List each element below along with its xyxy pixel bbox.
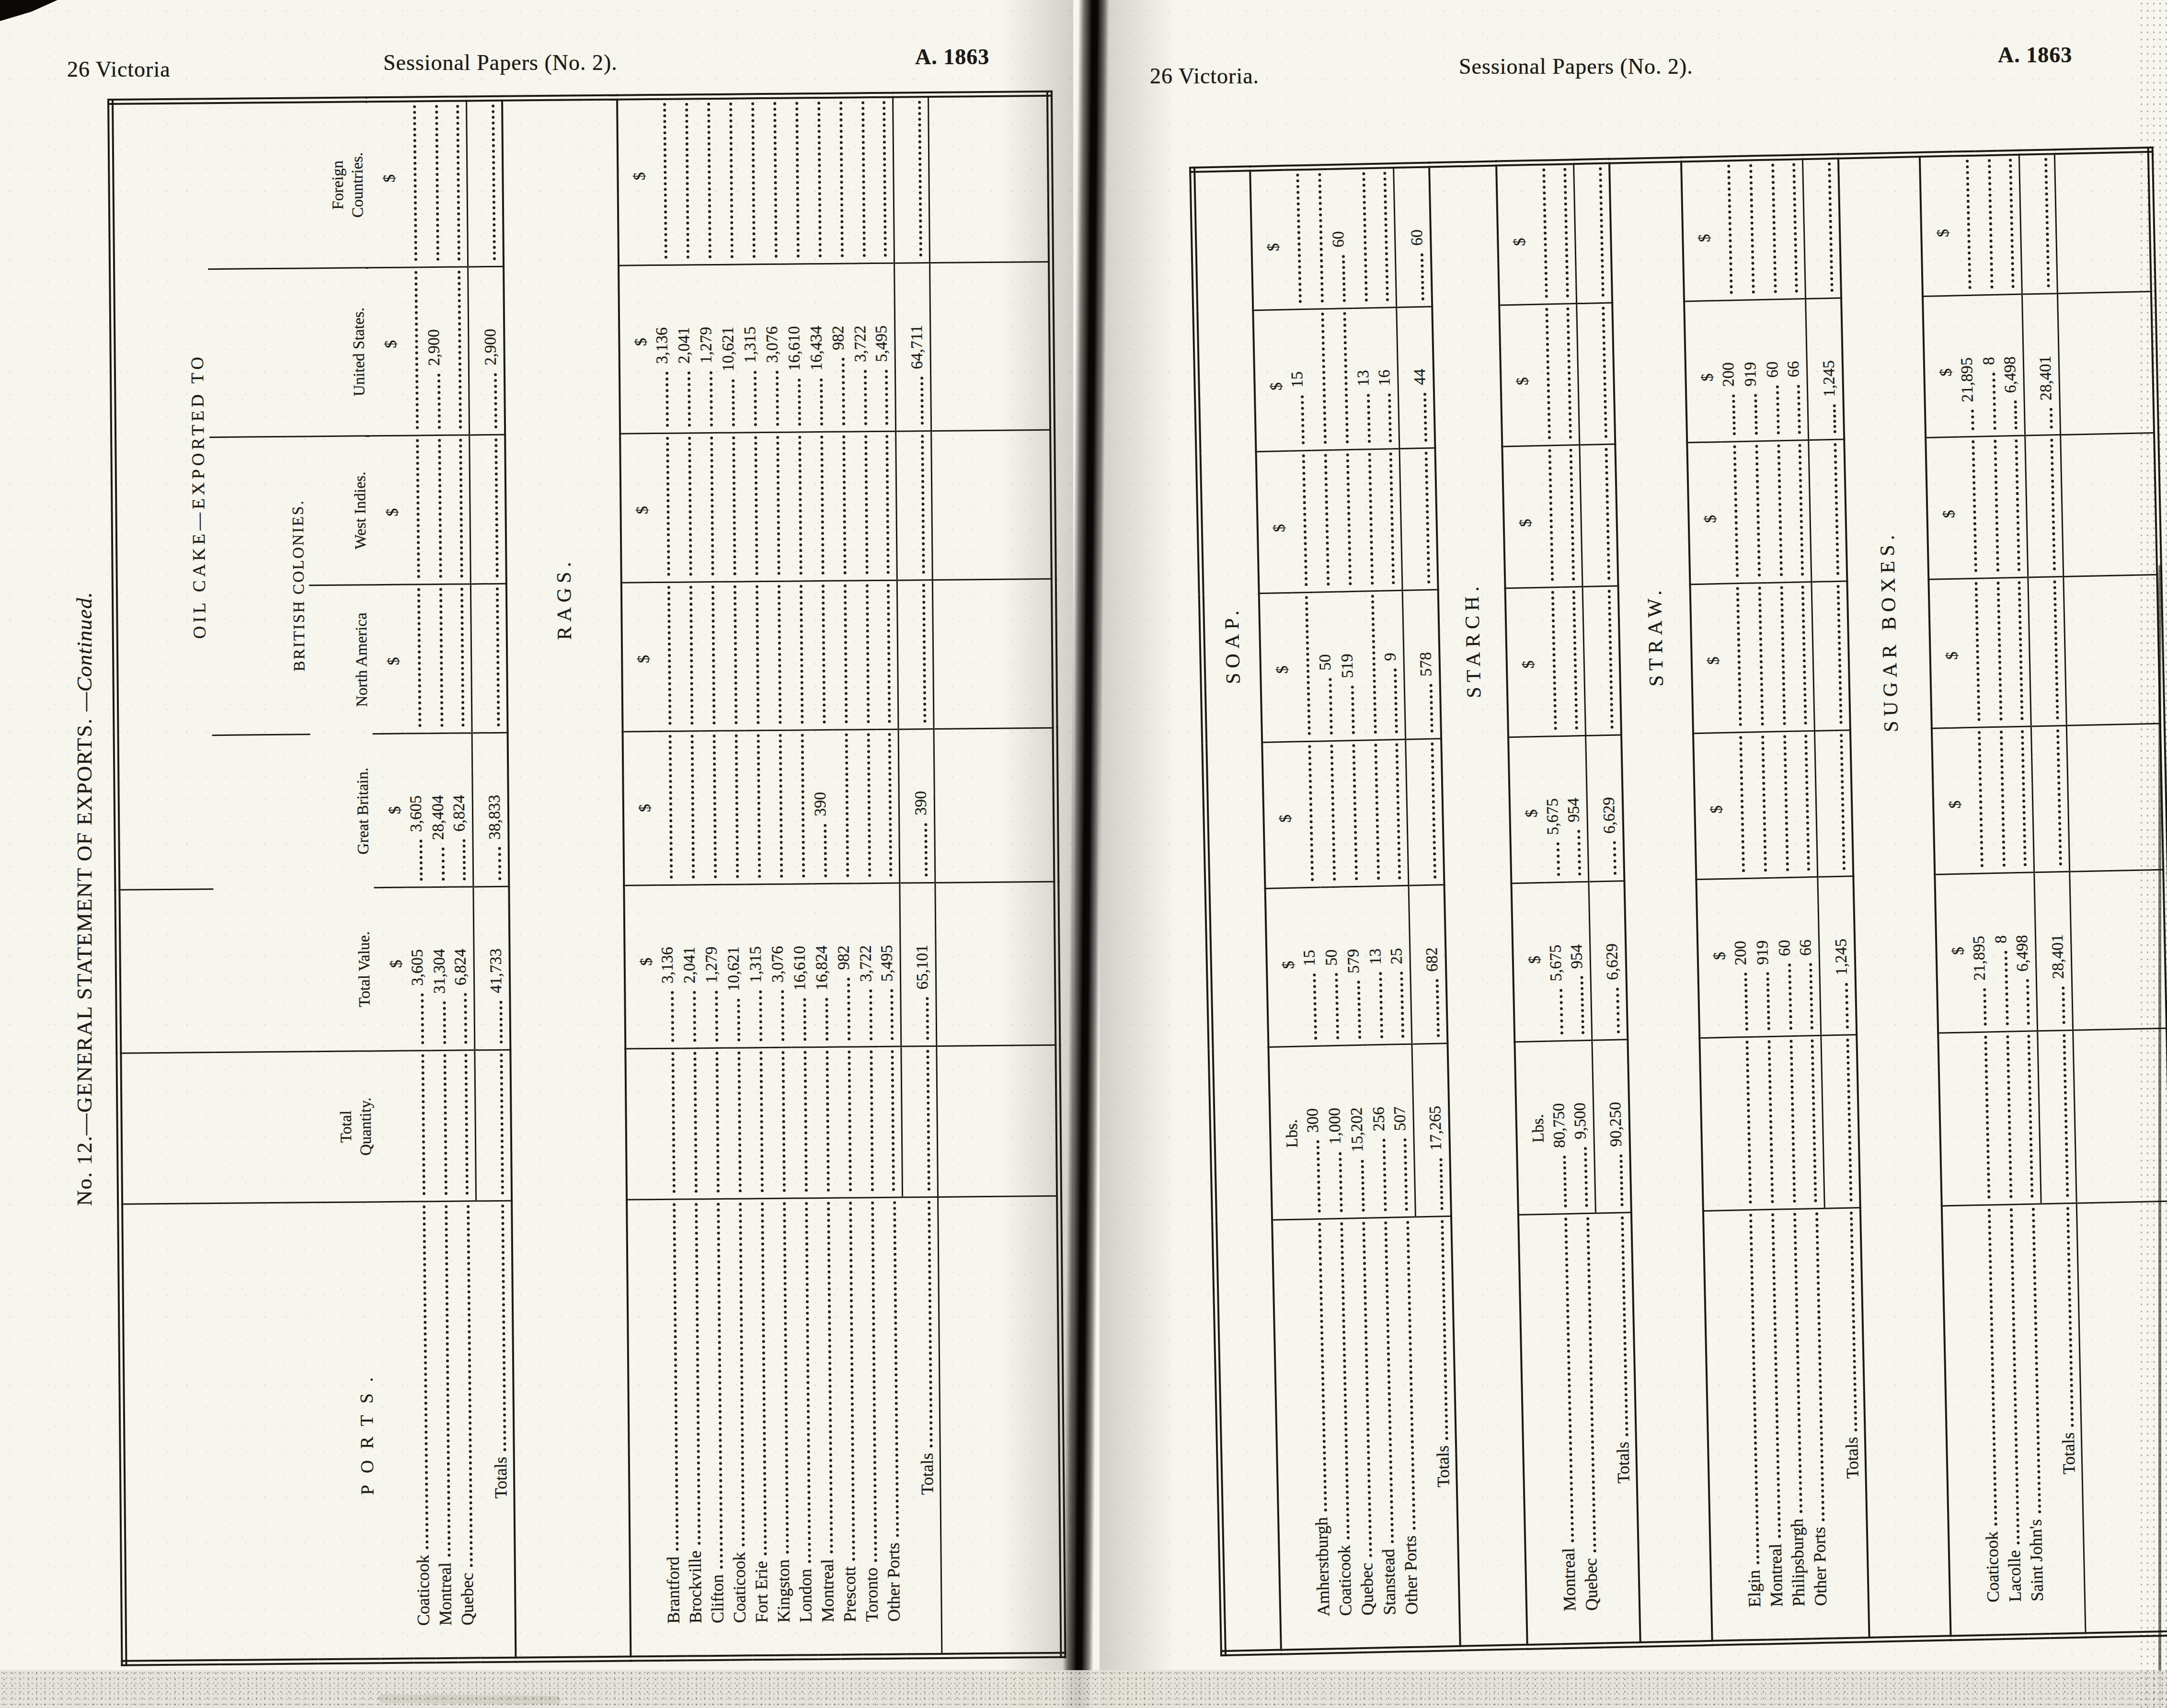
cell-content: 5,675: [1543, 737, 1567, 883]
gb-cell: [2009, 726, 2034, 873]
cell-content: 390: [912, 730, 935, 882]
tq-cell: [625, 1048, 660, 1200]
dotted-leader: [436, 374, 441, 429]
cell-content: $: [1272, 594, 1295, 741]
cell-content: $: [1513, 305, 1536, 446]
cell-content: [797, 582, 810, 729]
fc-cell: [673, 97, 696, 265]
dotted-leader: [1614, 988, 1620, 1033]
col-header-british-colonies: BRITISH COLONIES.: [209, 436, 310, 735]
section-band-cell: RAGS.: [502, 97, 631, 1660]
cell-content: 507: [1390, 1045, 1414, 1217]
value: 6,498: [2014, 935, 2031, 972]
tv-cell: $: [1935, 874, 1972, 1033]
cell-content: $: [387, 888, 409, 1050]
dotted-leader: [705, 103, 711, 258]
cell-content: 1,279: [702, 885, 725, 1047]
cell-content: [886, 730, 899, 882]
port-name: Brockville: [686, 1550, 705, 1623]
gb-cell: [744, 730, 768, 884]
tq-cell: [1755, 1036, 1781, 1210]
us-cell: 15: [1286, 309, 1311, 451]
dotted-leader: [2060, 986, 2065, 1024]
dotted-leader: [1404, 1221, 1416, 1530]
dotted-leader: [1380, 1139, 1387, 1211]
dotted-leader: [1316, 1223, 1327, 1512]
gb-cell: [700, 731, 723, 884]
cell-content: $: [1709, 880, 1733, 1037]
unit-symbol: $: [1949, 947, 1966, 955]
value: 2,900: [482, 329, 499, 366]
cell-content: 15: [1299, 888, 1324, 1046]
fc-cell: [739, 96, 762, 264]
dotted-leader: [1970, 440, 1977, 572]
dotted-leader: [1366, 453, 1374, 585]
dotted-leader: [1319, 312, 1327, 444]
cell-content: 3,722: [851, 264, 874, 431]
dotted-leader: [920, 584, 927, 722]
cell-content: [840, 432, 853, 580]
dotted-leader: [1986, 159, 1994, 288]
empty-cell: [937, 1045, 1059, 1197]
dotted-leader: [419, 993, 424, 1044]
dotted-leader: [1769, 163, 1777, 293]
cell-content: [916, 98, 929, 262]
dotted-leader: [916, 101, 922, 256]
us-cell: $: [368, 267, 403, 436]
dotted-leader: [1381, 172, 1389, 301]
cell-content: 28,404: [429, 734, 451, 886]
fc-cell: [1573, 161, 1612, 303]
us-cell: 28,401: [2022, 293, 2060, 436]
dotted-leader: [801, 998, 806, 1041]
dotted-leader: [1562, 1217, 1574, 1542]
dotted-leader: [421, 1205, 428, 1549]
port-name: Totals: [918, 1453, 937, 1495]
na-cell: [1984, 578, 2009, 727]
dotted-leader: [459, 587, 465, 726]
dotted-leader: [1982, 1036, 1990, 1199]
dotted-leader: [496, 847, 501, 880]
dotted-leader: [1603, 448, 1610, 580]
cell-content: 1,245: [1831, 877, 1856, 1035]
tv-cell: 10,621: [723, 884, 747, 1048]
gb-cell: [1318, 741, 1342, 888]
col-header-foreign-countries: Foreign Countries.: [206, 100, 368, 269]
tv-cell: 954: [1567, 882, 1592, 1041]
cell-content: [735, 1048, 748, 1198]
fc-cell: [1758, 158, 1783, 300]
value: 9,500: [1571, 1102, 1589, 1139]
cell-content: $: [1266, 310, 1289, 451]
unit-symbol: Lbs.: [1529, 1114, 1546, 1143]
cell-content: 390: [811, 731, 834, 883]
value: 256: [1370, 1107, 1387, 1132]
section-title: SUGAR BOXES.: [1870, 306, 1907, 957]
cell-content: [713, 1048, 726, 1198]
dotted-leader: [419, 1054, 425, 1195]
us-cell: 16,434: [806, 264, 830, 432]
dotted-leader: [735, 999, 740, 1042]
fc-cell: [467, 98, 504, 267]
na-cell: [470, 584, 507, 733]
dotted-leader: [683, 103, 689, 258]
cell-content: $: [1939, 438, 1962, 578]
dotted-leader: [731, 585, 737, 724]
dotted-leader: [1778, 586, 1786, 725]
cell-content: 41,733: [487, 887, 509, 1049]
value: 3,076: [769, 946, 786, 983]
cell-content: [705, 100, 718, 264]
dotted-leader: [777, 734, 783, 877]
dotted-leader: [1807, 963, 1813, 1030]
value: 507: [1391, 1106, 1408, 1131]
na-cell: $: [1928, 579, 1965, 728]
value: 3,136: [659, 947, 676, 984]
value: 60: [1408, 229, 1425, 246]
port-name: Totals: [1843, 1437, 1862, 1479]
value: 8: [1992, 935, 2008, 944]
ink-blot-top-left: [0, 0, 57, 21]
col-header-exported-to: OIL CAKE—EXPORTED TO: [111, 101, 213, 890]
dotted-leader: [1306, 745, 1314, 882]
tq-cell: 300: [1302, 1046, 1328, 1219]
fc-cell: [893, 95, 929, 264]
dotted-leader: [824, 1050, 830, 1192]
dotted-leader: [1781, 735, 1789, 871]
port-name: Montreal: [436, 1562, 455, 1626]
dotted-leader: [664, 371, 669, 427]
cell-content: $: [384, 585, 406, 733]
cell-content: $: [383, 436, 405, 584]
fc-cell: [826, 95, 850, 264]
dotted-leader: [735, 1051, 742, 1192]
na-cell: [787, 581, 810, 730]
fc-cell: [1350, 166, 1375, 309]
na-cell: [721, 582, 744, 731]
cell-content: [1605, 587, 1620, 734]
port-cell: Montreal: [432, 1202, 458, 1661]
wi-cell: [425, 435, 449, 584]
tv-cell: $: [1511, 883, 1548, 1042]
cell-content: $: [1942, 580, 1965, 727]
na-cell: [426, 584, 450, 733]
value: 60: [1776, 940, 1793, 956]
gb-cell: 6,629: [1586, 735, 1624, 882]
dotted-leader: [414, 439, 420, 578]
tv-cell: 16,610: [790, 883, 813, 1047]
gb-cell: $: [1262, 742, 1298, 889]
value: 25: [1388, 948, 1405, 964]
dotted-leader: [1360, 1222, 1372, 1557]
port-name: Montreal: [1766, 1544, 1786, 1607]
value: 6,824: [451, 795, 468, 832]
page-header-title-right: Sessional Papers (No. 2).: [1459, 54, 1693, 79]
unit-symbol: $: [1699, 373, 1715, 382]
cell-content: [889, 1047, 902, 1197]
cell-content: 16,610: [791, 884, 813, 1046]
unit-symbol: $: [1943, 652, 1960, 660]
cell-content: [799, 731, 812, 883]
us-cell: 3,076: [762, 264, 786, 432]
value: 6,824: [452, 949, 469, 986]
dotted-leader: [1756, 586, 1764, 725]
port-name: Montreal: [818, 1559, 837, 1622]
fc-cell: [1306, 167, 1330, 309]
cell-content: [688, 732, 701, 884]
cell-content: [433, 102, 446, 266]
value: 982: [830, 326, 846, 350]
cell-content: 2,900: [425, 268, 447, 435]
dotted-leader: [771, 102, 778, 258]
cell-content: [411, 102, 424, 266]
tv-cell: 66: [1796, 877, 1821, 1036]
cell-content: [862, 432, 875, 580]
tq-cell: [769, 1047, 792, 1199]
dotted-leader: [1344, 454, 1352, 585]
dotted-leader: [2016, 581, 2023, 720]
fc-cell: [1714, 159, 1739, 301]
us-cell: 16,610: [784, 264, 808, 432]
dotted-leader: [818, 436, 825, 574]
tv-cell: 3,722: [856, 883, 879, 1046]
value: 28,401: [2049, 934, 2066, 979]
value: 5,495: [878, 945, 895, 982]
tq-cell: [2016, 1031, 2041, 1204]
empty-cell: [932, 579, 1055, 729]
port-cell: [627, 1200, 664, 1659]
cell-content: 5,495: [878, 883, 900, 1045]
dotted-leader: [461, 839, 466, 880]
dotted-leader: [867, 989, 872, 1040]
us-cell: 13: [1353, 308, 1377, 450]
tv-cell: 919: [1752, 878, 1777, 1037]
cell-content: 16,610: [785, 264, 808, 431]
wi-cell: [676, 433, 699, 582]
dotted-leader: [888, 989, 894, 1040]
cell-content: [843, 730, 856, 883]
empty-cell: [2073, 1028, 2167, 1203]
cell-content: [846, 1047, 859, 1197]
cell-content: [413, 268, 425, 435]
dotted-leader: [1611, 841, 1616, 875]
dotted-leader: [1568, 449, 1575, 581]
unit-symbol: $: [1514, 377, 1530, 386]
tv-cell: 5,495: [878, 883, 901, 1046]
page-header-year-left: A. 1863: [915, 44, 989, 69]
cell-content: 31,304: [430, 887, 453, 1049]
tv-cell: 50: [1320, 887, 1346, 1046]
cell-content: 8: [1979, 295, 2003, 436]
gb-cell: 5,675: [1542, 736, 1567, 883]
cell-content: 64,711: [908, 264, 930, 430]
fc-cell: [651, 97, 674, 265]
cell-content: 2,041: [680, 885, 703, 1047]
wi-cell: [1311, 450, 1336, 593]
foreign-countries-label: Foreign Countries.: [328, 133, 368, 237]
scanned-document-spread: 26 Victoria Sessional Papers (No. 2). A.…: [0, 0, 2167, 1708]
dotted-leader: [1328, 745, 1336, 881]
dotted-leader: [837, 102, 844, 257]
cell-content: 578: [1416, 590, 1440, 738]
dotted-leader: [1300, 455, 1307, 586]
dotted-leader: [869, 1202, 877, 1562]
port-name: Clifton: [709, 1574, 727, 1623]
value: 15: [1288, 371, 1305, 388]
cell-content: [774, 433, 787, 581]
wi-cell: [447, 435, 471, 584]
tv-cell: 1,279: [701, 884, 725, 1048]
dotted-leader: [1398, 972, 1404, 1038]
port-name: Totals: [492, 1456, 510, 1499]
gb-cell: [1406, 739, 1444, 886]
na-cell: [1745, 583, 1770, 733]
dotted-leader: [2029, 1208, 2041, 1514]
na-cell: [897, 580, 934, 729]
gb-cell: [1340, 740, 1364, 887]
dotted-leader: [456, 271, 462, 429]
port-name: Totals: [1614, 1442, 1633, 1484]
dotted-leader: [774, 436, 780, 575]
dotted-leader: [708, 371, 713, 427]
cell-content: [1597, 164, 1611, 302]
dotted-leader: [1422, 452, 1430, 584]
cell-content: [687, 583, 700, 730]
gb-cell: [656, 731, 679, 885]
na-cell: [2006, 577, 2031, 727]
cell-content: [459, 585, 471, 732]
cell-content: 3,076: [763, 265, 786, 432]
tq-cell: 17,265: [1412, 1043, 1451, 1217]
dotted-leader: [713, 1051, 720, 1192]
gb-cell: [788, 730, 812, 883]
cell-content: $: [1697, 301, 1720, 442]
dotted-leader: [1314, 1140, 1320, 1213]
dotted-leader: [688, 734, 695, 878]
cell-content: [749, 99, 762, 264]
dotted-leader: [845, 977, 850, 1040]
port-name: Montreal: [1559, 1548, 1579, 1612]
tv-cell: 41,733: [473, 886, 510, 1050]
wi-cell: [1981, 436, 2006, 579]
na-cell: 50: [1314, 592, 1339, 741]
port-name: Coaticook: [1983, 1531, 2003, 1603]
dotted-leader: [1372, 744, 1380, 880]
dotted-leader: [865, 733, 871, 877]
cell-content: 6,629: [1602, 882, 1627, 1040]
cell-content: [752, 433, 765, 581]
unit-symbol: $: [1935, 229, 1951, 238]
unit-symbol: $: [1280, 961, 1296, 969]
tq-cell: [1821, 1035, 1860, 1208]
gb-cell: [1748, 732, 1773, 879]
dotted-leader: [2012, 401, 2018, 429]
section-title: STARCH.: [1454, 315, 1491, 965]
fc-cell: [761, 96, 784, 264]
dotted-leader: [2007, 159, 2015, 288]
cell-content: $: [1269, 452, 1292, 592]
exports-table-left: PORTS. Total Quantity. Total Value. OIL …: [107, 91, 1066, 1666]
page-header-volume-left: 26 Victoria: [67, 57, 171, 82]
port-cell: Brantford: [660, 1199, 686, 1658]
dotted-leader: [796, 436, 803, 574]
dotted-leader: [413, 271, 419, 429]
value: 519: [1339, 653, 1355, 678]
us-cell: 44: [1397, 307, 1435, 449]
cell-content: $: [1263, 171, 1286, 310]
na-cell: [809, 581, 832, 730]
wi-cell: [1787, 440, 1812, 583]
dotted-leader: [883, 369, 888, 425]
dotted-leader: [1322, 454, 1330, 586]
tq-cell: [659, 1048, 682, 1200]
dotted-leader: [1617, 1154, 1623, 1206]
cell-content: $: [1948, 875, 1972, 1032]
value: 66: [1785, 361, 1802, 378]
unit-symbol: $: [1517, 519, 1533, 527]
dotted-leader: [1316, 173, 1324, 302]
dotted-leader: [759, 1203, 767, 1556]
cell-content: 60: [1763, 300, 1787, 441]
dotted-leader: [1796, 444, 1804, 576]
cell-content: [771, 99, 784, 264]
cell-content: [730, 434, 743, 581]
cell-content: 6,824: [450, 734, 473, 886]
dotted-leader: [1742, 973, 1748, 1031]
na-cell: [2028, 577, 2066, 726]
unit-symbol: $: [1940, 510, 1957, 518]
dotted-leader: [881, 101, 887, 257]
dotted-leader: [1337, 1152, 1343, 1212]
dotted-leader: [822, 824, 827, 877]
value: 6,629: [1604, 943, 1621, 980]
cell-content: [1429, 739, 1443, 884]
unit-symbol: $: [1696, 234, 1712, 242]
tq-cell: [879, 1046, 903, 1198]
dotted-leader: [796, 378, 801, 426]
na-cell: [743, 581, 766, 730]
dotted-leader: [1832, 443, 1839, 575]
dotted-leader: [863, 584, 870, 723]
value: 1,245: [1833, 939, 1850, 975]
unit-symbol: $: [385, 657, 401, 665]
cell-content: 3,136: [653, 266, 676, 433]
fc-cell: [1975, 153, 2000, 295]
unit-symbol: $: [1511, 238, 1527, 246]
unit-symbol: $: [382, 340, 399, 348]
port-name: Coaticook: [730, 1552, 749, 1623]
dotted-leader: [465, 1205, 473, 1567]
dotted-leader: [1747, 164, 1755, 293]
port-name: Prescott: [840, 1566, 859, 1622]
page-edge-line: [2158, 565, 2161, 1706]
gb-cell: [1726, 732, 1751, 879]
unit-symbol: $: [1273, 665, 1290, 674]
dotted-leader: [861, 370, 867, 425]
dotted-leader: [1554, 842, 1559, 876]
dotted-leader: [1788, 1040, 1796, 1203]
cell-content: Lbs.: [1282, 1047, 1305, 1219]
cell-content: [819, 582, 832, 729]
port-cell: Other Ports: [881, 1197, 906, 1656]
value: 5,675: [1544, 798, 1561, 835]
dotted-leader: [1564, 307, 1572, 439]
cell-content: 25: [1387, 886, 1411, 1044]
tv-cell: 65,101: [900, 883, 937, 1046]
cell-content: [753, 582, 766, 730]
dotted-leader: [2019, 730, 2027, 867]
dotted-leader: [437, 588, 443, 727]
